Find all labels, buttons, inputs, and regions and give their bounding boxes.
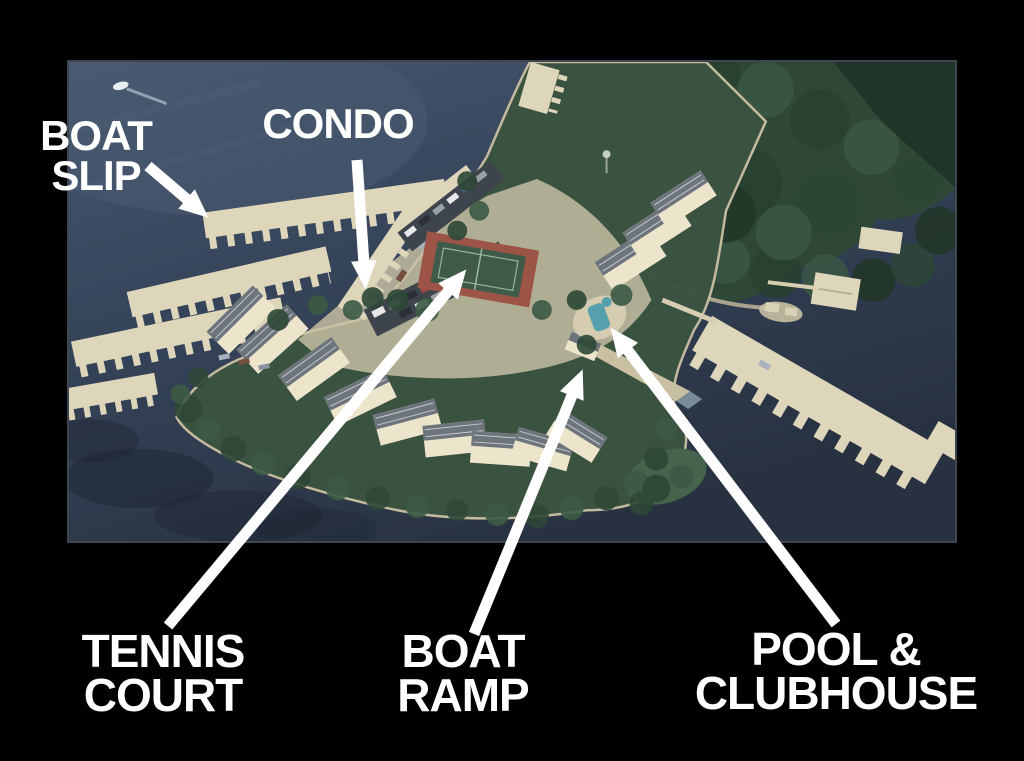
hot-tub — [602, 297, 612, 307]
label-condo: CONDO — [262, 104, 413, 144]
label-tennis-court-line1: TENNIS — [82, 630, 245, 674]
label-pool-clubhouse: POOL & CLUBHOUSE — [695, 628, 977, 715]
label-condo-line1: CONDO — [262, 104, 413, 144]
label-tennis-court-line2: COURT — [82, 674, 245, 718]
label-boat-slip-line1: BOAT — [40, 116, 152, 156]
label-boat-ramp: BOAT RAMP — [397, 630, 528, 717]
label-boat-slip-line2: SLIP — [40, 156, 152, 196]
annotated-aerial-photo-page: BOAT SLIP CONDO TENNIS COURT BOAT RAMP P… — [0, 0, 1024, 761]
aerial-photo-scene — [69, 62, 955, 541]
label-pool-clubhouse-line2: CLUBHOUSE — [695, 672, 977, 716]
label-boat-ramp-line1: BOAT — [397, 630, 528, 674]
label-pool-clubhouse-line1: POOL & — [695, 628, 977, 672]
label-tennis-court: TENNIS COURT — [82, 630, 245, 717]
label-boat-slip: BOAT SLIP — [40, 116, 152, 196]
label-boat-ramp-line2: RAMP — [397, 674, 528, 718]
aerial-photo — [67, 60, 957, 543]
